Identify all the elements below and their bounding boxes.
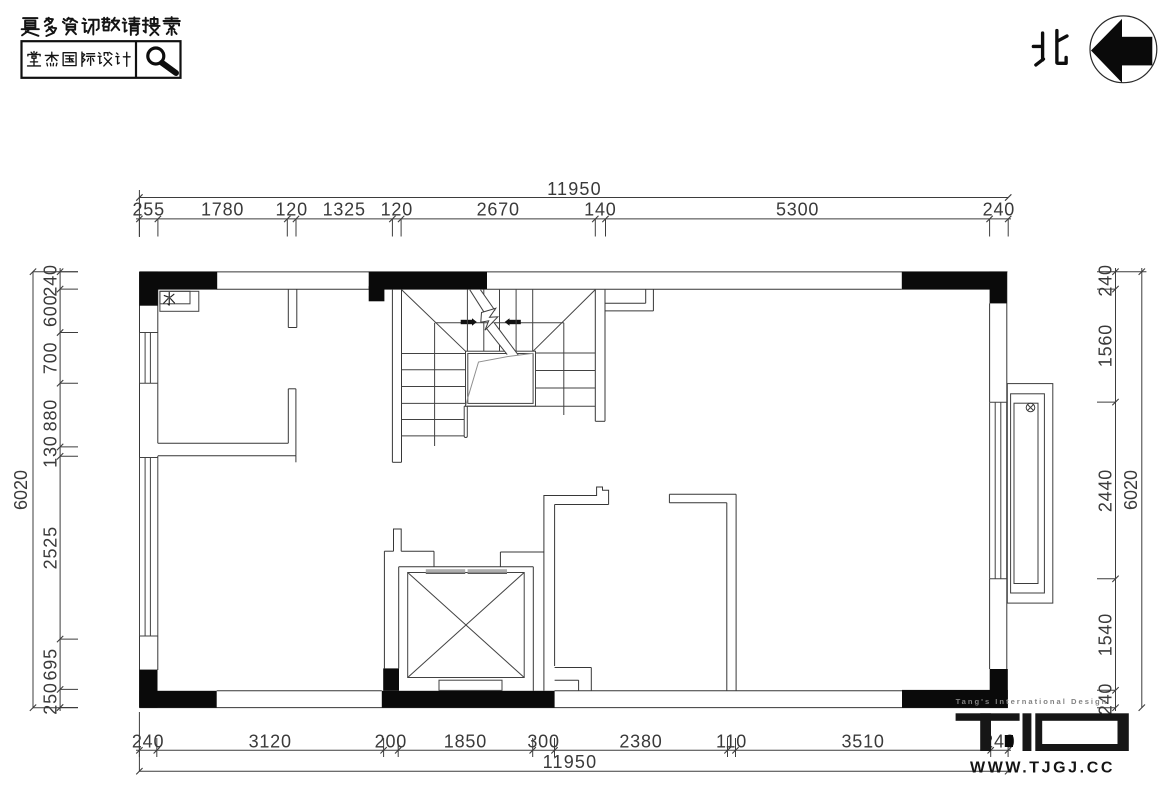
svg-text:1325: 1325 [323, 200, 366, 220]
svg-text:1540: 1540 [1096, 613, 1116, 656]
svg-text:695: 695 [41, 648, 61, 680]
svg-text:1850: 1850 [444, 732, 487, 752]
svg-text:255: 255 [132, 200, 164, 220]
svg-text:240: 240 [132, 732, 164, 752]
svg-text:1780: 1780 [201, 200, 244, 220]
svg-text:120: 120 [381, 200, 413, 220]
svg-text:2380: 2380 [619, 732, 662, 752]
svg-text:250: 250 [41, 682, 61, 714]
svg-text:6020: 6020 [11, 470, 31, 510]
svg-text:3510: 3510 [841, 732, 884, 752]
svg-text:5300: 5300 [776, 200, 819, 220]
svg-text:2440: 2440 [1096, 469, 1116, 512]
svg-text:880: 880 [41, 399, 61, 431]
svg-text:700: 700 [41, 342, 61, 374]
svg-text:240: 240 [41, 264, 61, 296]
svg-text:11950: 11950 [543, 752, 598, 772]
svg-text:140: 140 [584, 200, 616, 220]
svg-text:300: 300 [527, 732, 559, 752]
svg-text:240: 240 [1096, 264, 1116, 296]
svg-text:Tang's International Design: Tang's International Design [956, 697, 1109, 706]
svg-text:3120: 3120 [249, 732, 292, 752]
svg-text:130: 130 [41, 435, 61, 467]
svg-text:6020: 6020 [1121, 470, 1141, 510]
svg-text:1560: 1560 [1096, 324, 1116, 367]
svg-text:600: 600 [41, 295, 61, 327]
svg-text:2525: 2525 [41, 526, 61, 569]
svg-text:WWW.TJGJ.CC: WWW.TJGJ.CC [970, 760, 1115, 777]
svg-text:2670: 2670 [477, 200, 520, 220]
svg-text:120: 120 [275, 200, 307, 220]
svg-text:11950: 11950 [547, 179, 602, 199]
svg-text:240: 240 [983, 200, 1015, 220]
svg-text:110: 110 [716, 732, 747, 752]
svg-text:200: 200 [375, 732, 407, 752]
